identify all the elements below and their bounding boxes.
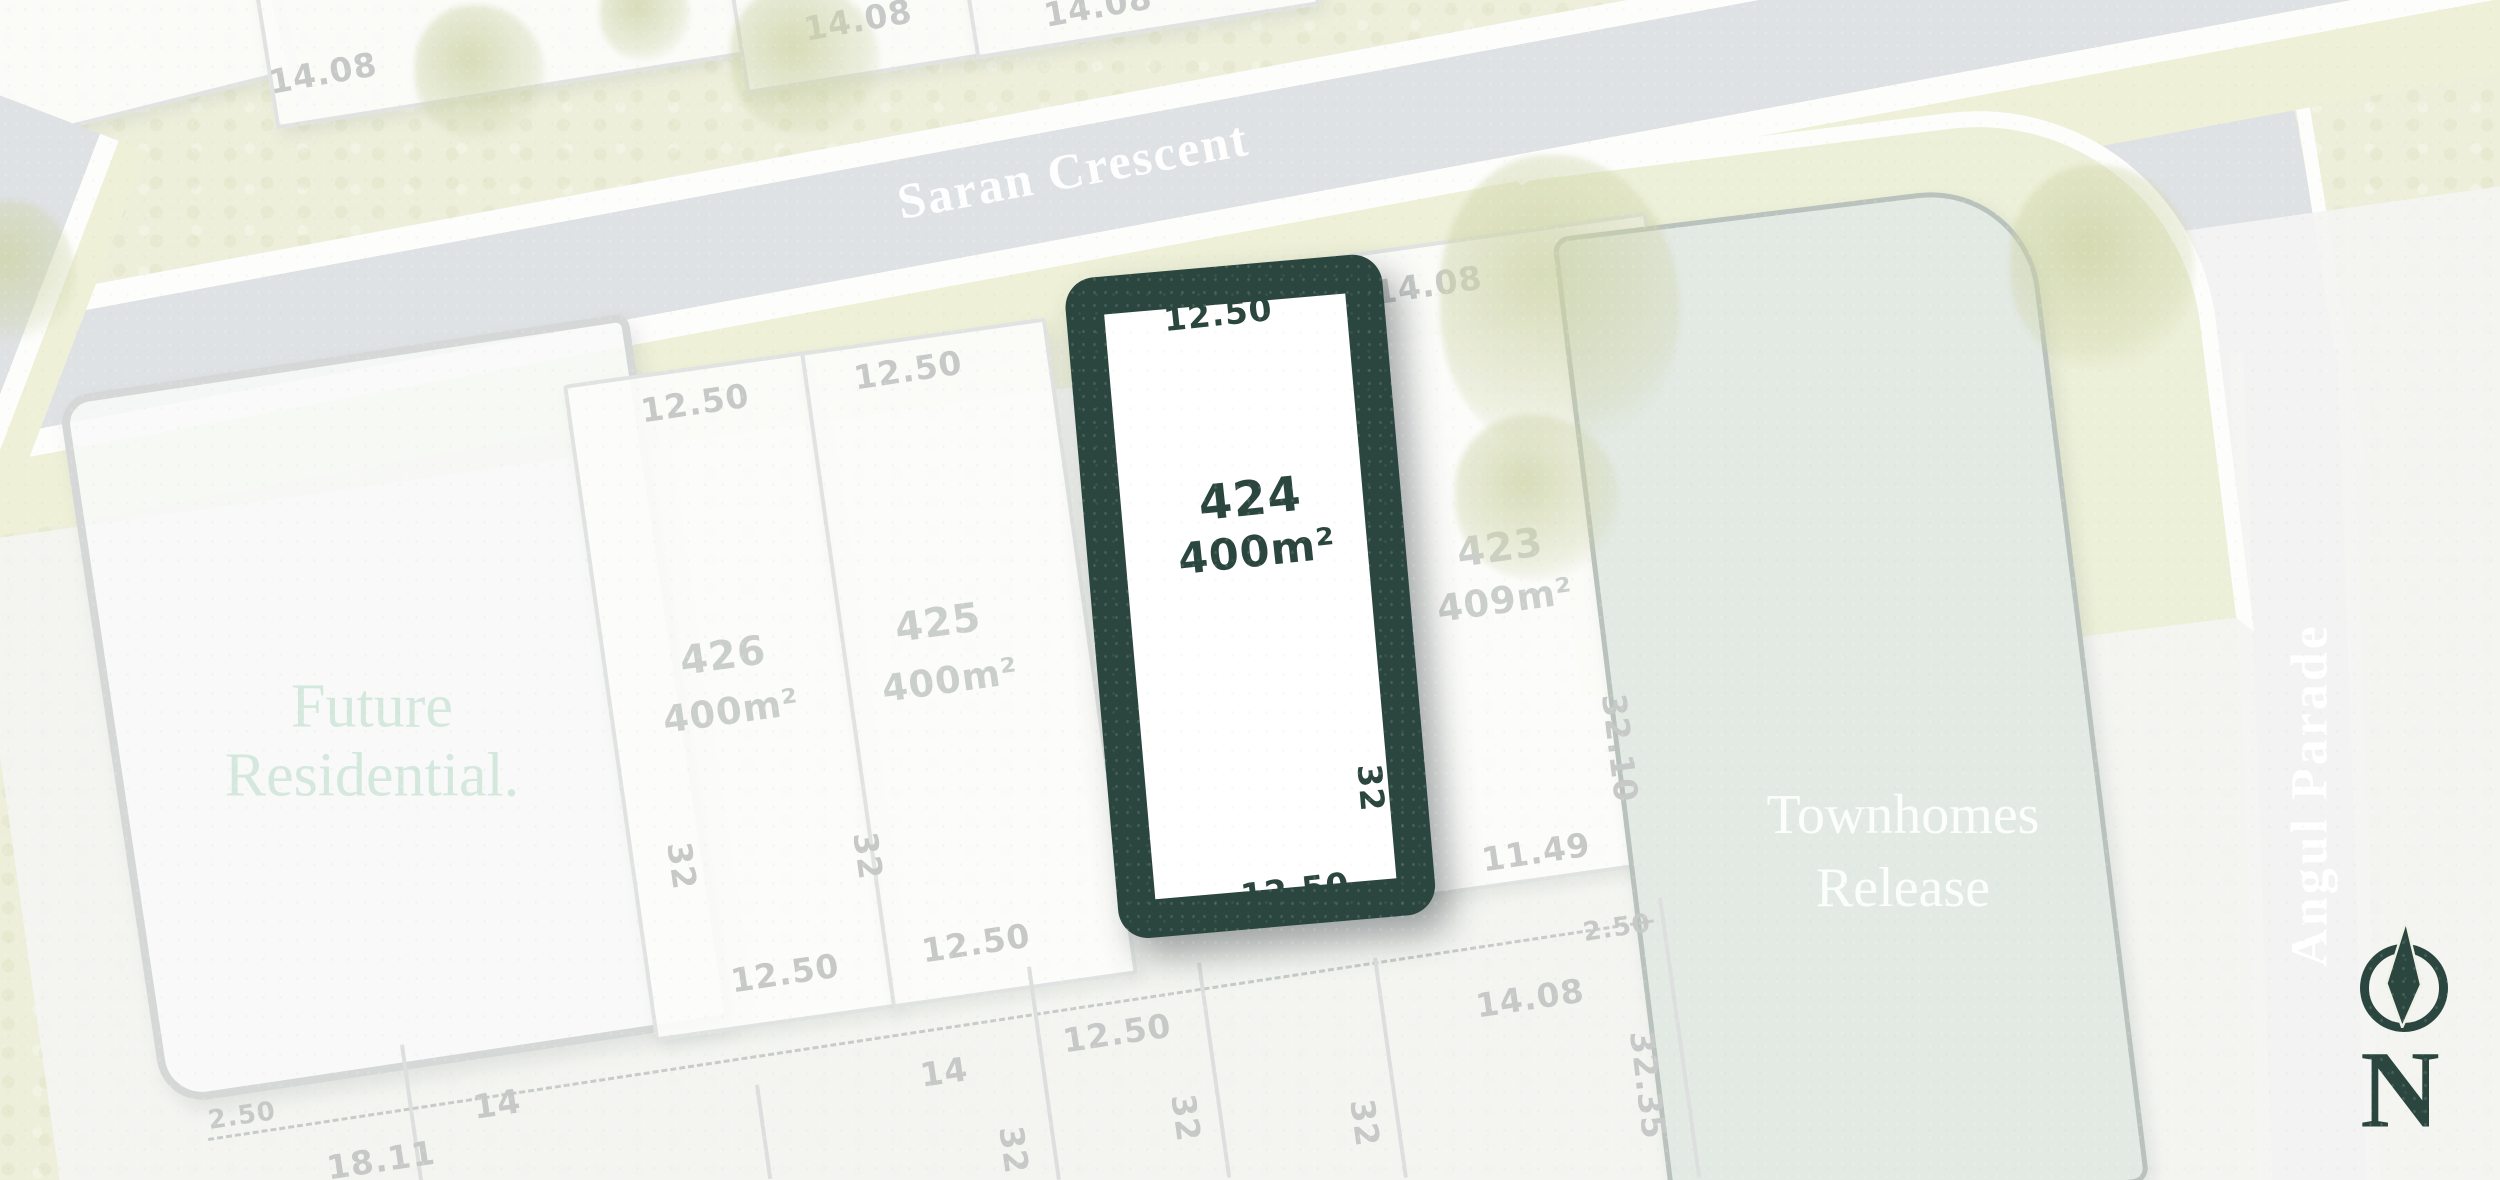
future-line1: Future (225, 673, 519, 742)
bottom-depth-dim: 32 (991, 1124, 1036, 1177)
tree-icon (2010, 165, 2195, 370)
townhomes-line2: Release (1767, 852, 2040, 925)
lot-425-side-dim: 32 (845, 830, 890, 883)
townhomes-line1: Townhomes (1767, 779, 2040, 852)
tree-icon (730, 0, 880, 135)
tree-icon (415, 5, 545, 140)
bottom-frontage-dim: 14 (917, 1049, 970, 1095)
compass-needle-icon (2380, 923, 2428, 1028)
future-line2: Residential. (225, 742, 519, 811)
lot-424-side-dim: 32 (1349, 762, 1392, 813)
compass-north-label: N (2360, 1027, 2439, 1154)
townhomes-release-label: Townhomes Release (1767, 779, 2040, 925)
lot-424-highlighted[interactable] (1063, 252, 1438, 940)
street-name-angul-parade: Angul Parade (2281, 623, 2340, 967)
lot-424-number: 424 (1196, 466, 1304, 532)
future-residential-label: Future Residential. (225, 673, 519, 812)
tree-icon (1455, 415, 1620, 580)
bottom-depth-dim: 32 (1342, 1097, 1387, 1150)
bottom-frontage-dim: 14 (470, 1081, 523, 1127)
bottom-depth-dim: 32 (1163, 1092, 1208, 1145)
lot-426-side-dim: 32 (659, 840, 704, 893)
estate-masterplan-map: 14.08 14.08 14.08 12.50 426 400m² 32 12.… (0, 0, 2500, 1180)
